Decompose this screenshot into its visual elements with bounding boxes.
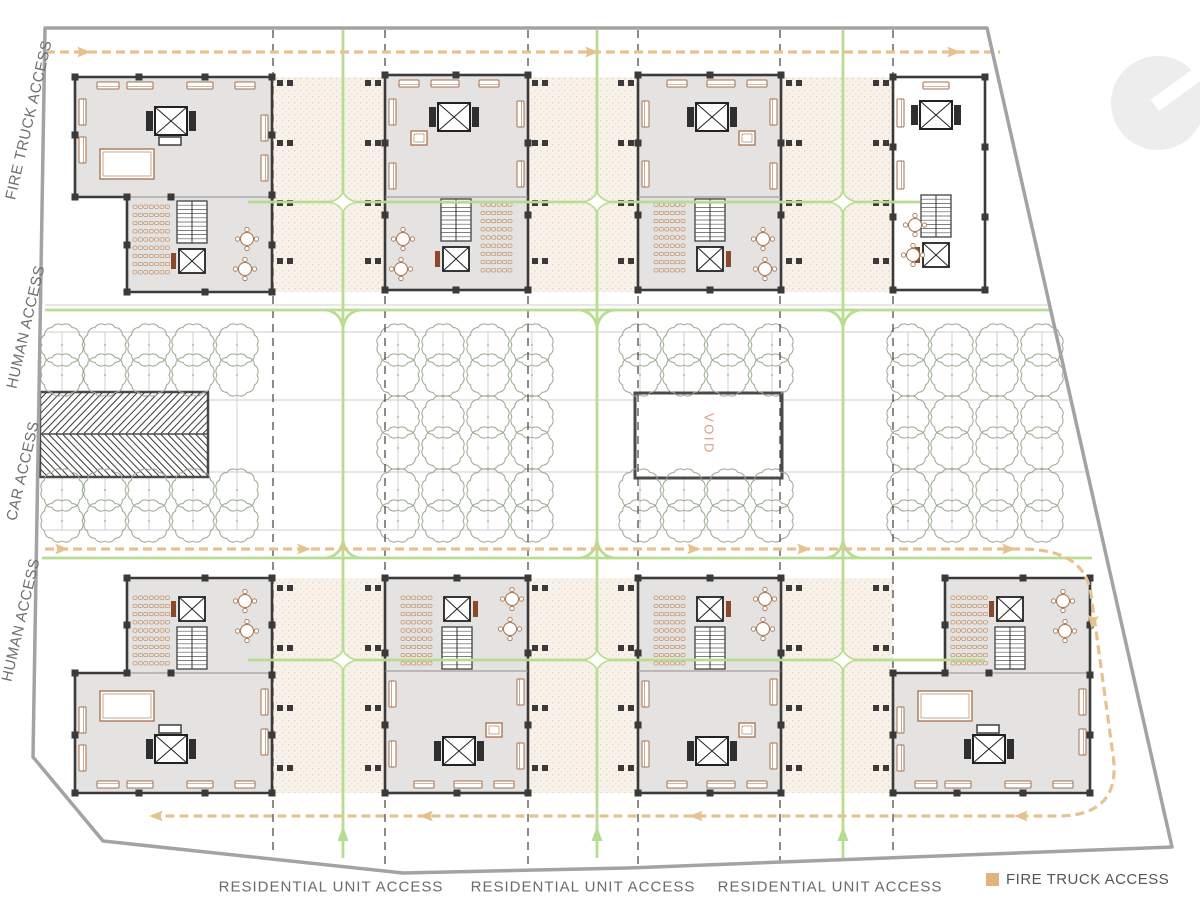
building-6: [382, 575, 532, 797]
building-7: [635, 575, 785, 797]
logo-watermark: [1111, 56, 1200, 150]
building-3: [635, 72, 785, 294]
site-plan-drawing: [0, 0, 1200, 904]
legend-label: FIRE TRUCK ACCESS: [1006, 871, 1169, 888]
label-void: VOID: [702, 413, 717, 455]
label-residential-unit-access-3: RESIDENTIAL UNIT ACCESS: [718, 879, 943, 896]
building-5: [72, 575, 276, 797]
label-residential-unit-access-2: RESIDENTIAL UNIT ACCESS: [471, 879, 696, 896]
building-4: [890, 74, 989, 294]
building-2: [382, 72, 532, 294]
building-8: [890, 575, 1094, 797]
site-plan: FIRE TRUCK ACCESS HUMAN ACCESS CAR ACCES…: [0, 0, 1200, 904]
legend-fire-truck: FIRE TRUCK ACCESS: [986, 871, 1169, 888]
legend-swatch: [986, 873, 999, 886]
label-residential-unit-access-1: RESIDENTIAL UNIT ACCESS: [219, 879, 444, 896]
ramp-and-void: [0, 392, 782, 478]
building-1: [72, 74, 276, 296]
plaza-courtyards: [273, 77, 893, 793]
